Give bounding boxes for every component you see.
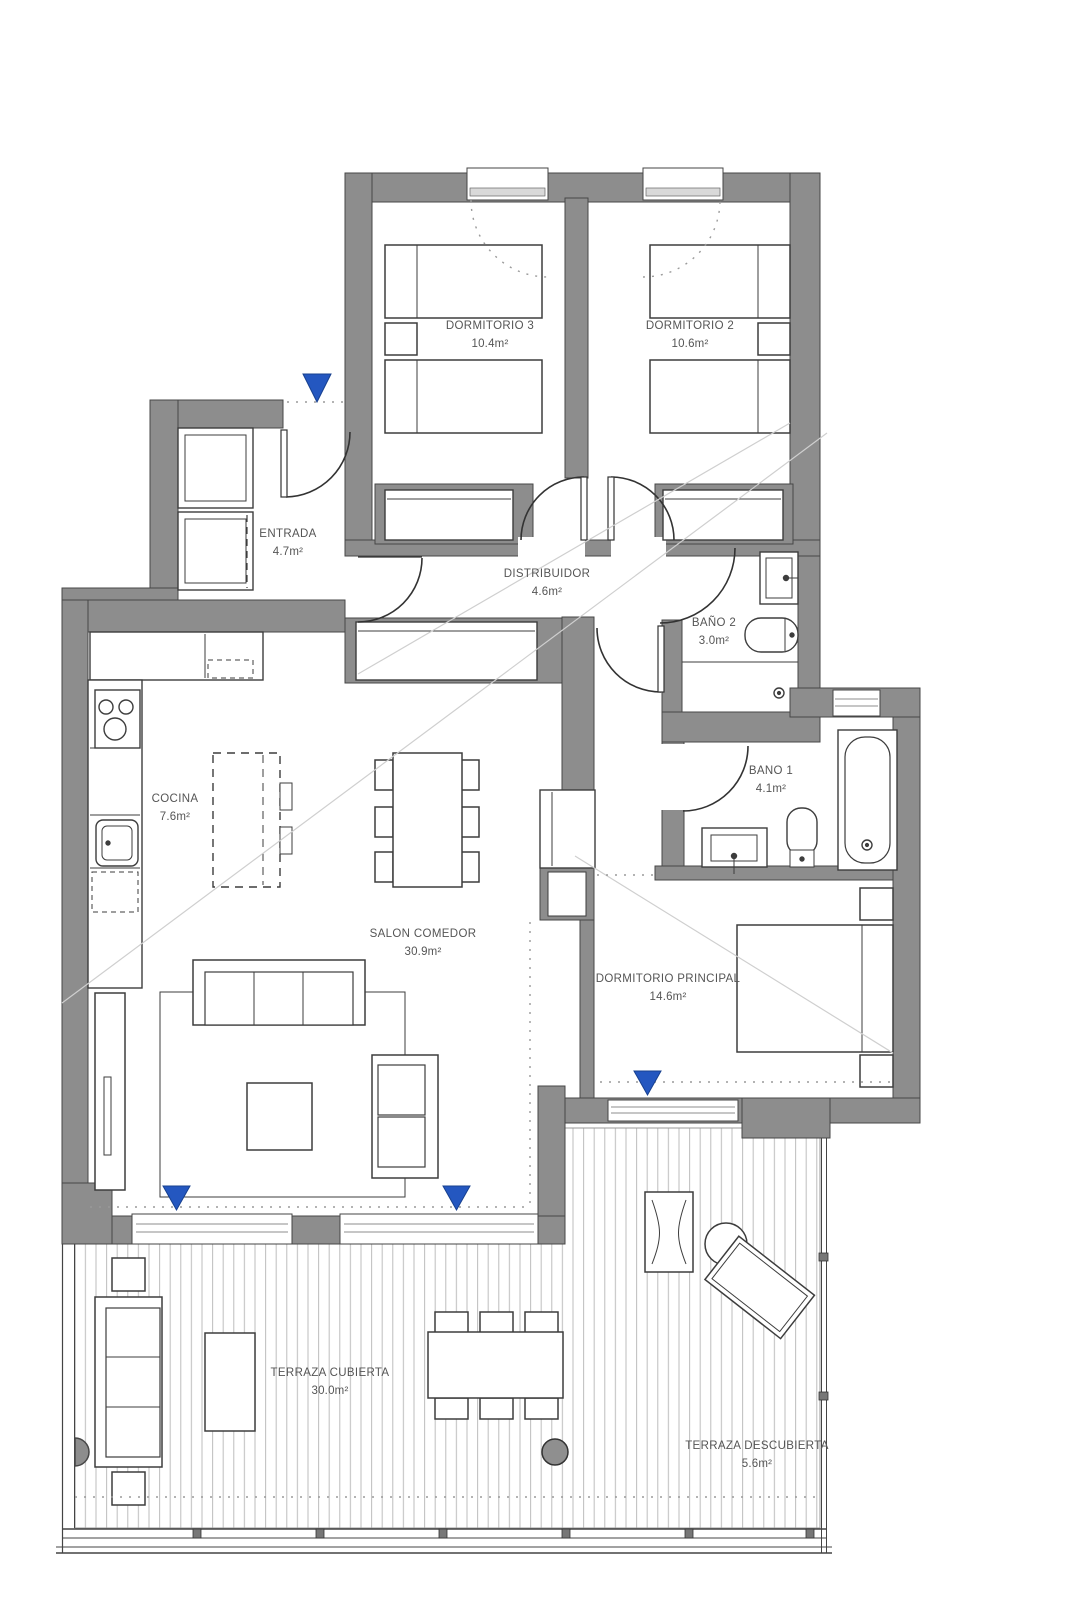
railing-posts <box>193 1529 814 1538</box>
bano2-door-arc <box>660 548 735 623</box>
kitchen-fixtures <box>88 632 292 988</box>
coffee-table <box>247 1083 312 1150</box>
chair <box>461 807 479 837</box>
chair <box>435 1312 468 1333</box>
bed <box>385 245 542 318</box>
floorplan-graphics <box>0 0 1077 1600</box>
access-marker <box>163 1186 190 1210</box>
side-table <box>112 1258 145 1291</box>
side-table <box>112 1472 145 1505</box>
closets <box>178 428 783 916</box>
entrance-marker <box>303 374 331 402</box>
bano1-door-arc <box>683 746 748 811</box>
bed <box>650 360 790 433</box>
bed <box>650 245 790 318</box>
dining-table <box>393 753 462 887</box>
access-marker <box>634 1071 661 1095</box>
chair <box>480 1312 513 1333</box>
walls <box>62 173 920 1244</box>
nightstand <box>385 323 417 355</box>
nightstand <box>860 888 893 920</box>
salon-door-arc <box>358 558 422 622</box>
chair <box>461 760 479 790</box>
deck-chair <box>645 1192 693 1272</box>
access-marker <box>443 1186 470 1210</box>
chair <box>525 1398 558 1419</box>
chair <box>375 852 393 882</box>
outdoor-coffee-table <box>205 1333 255 1431</box>
chair <box>375 807 393 837</box>
chair <box>435 1398 468 1419</box>
outdoor-dining-table <box>428 1332 563 1398</box>
hall-door-arc <box>597 628 661 692</box>
nightstand <box>758 323 790 355</box>
chair <box>525 1312 558 1333</box>
chair <box>375 760 393 790</box>
chair <box>480 1398 513 1419</box>
floor-plan: DORMITORIO 3 10.4m² DORMITORIO 2 10.6m² … <box>0 0 1077 1600</box>
entry-door-arc <box>286 432 350 497</box>
double-bed <box>737 925 893 1052</box>
bed <box>385 360 542 433</box>
toilet-icon <box>787 808 817 855</box>
stool <box>542 1439 568 1465</box>
chair <box>461 852 479 882</box>
